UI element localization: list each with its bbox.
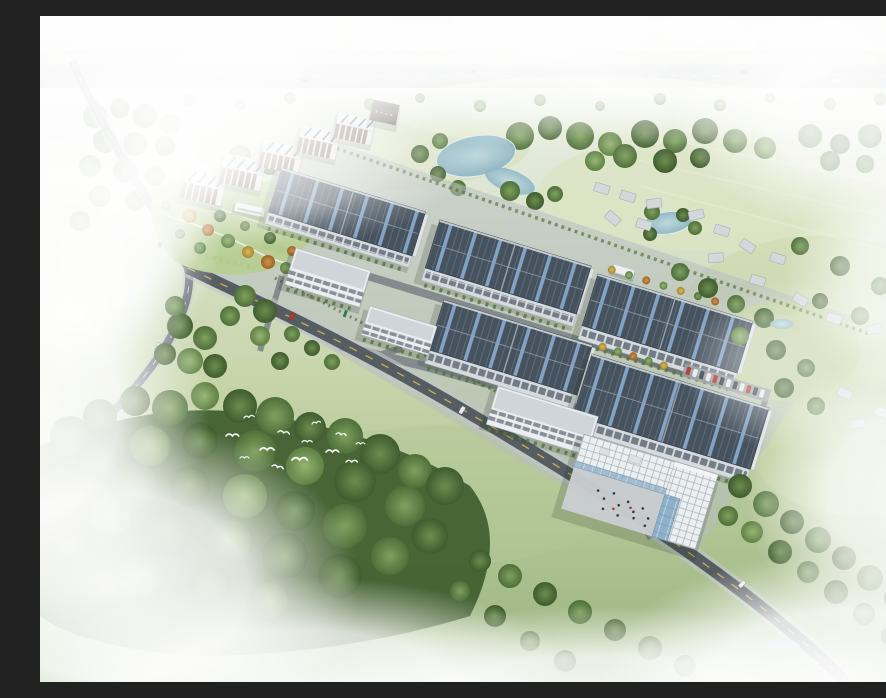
rendering-canvas — [40, 16, 886, 682]
top-haze — [40, 16, 886, 166]
aerial-rendering: Bird's-eye rendering of an industrial lo… — [40, 16, 886, 682]
